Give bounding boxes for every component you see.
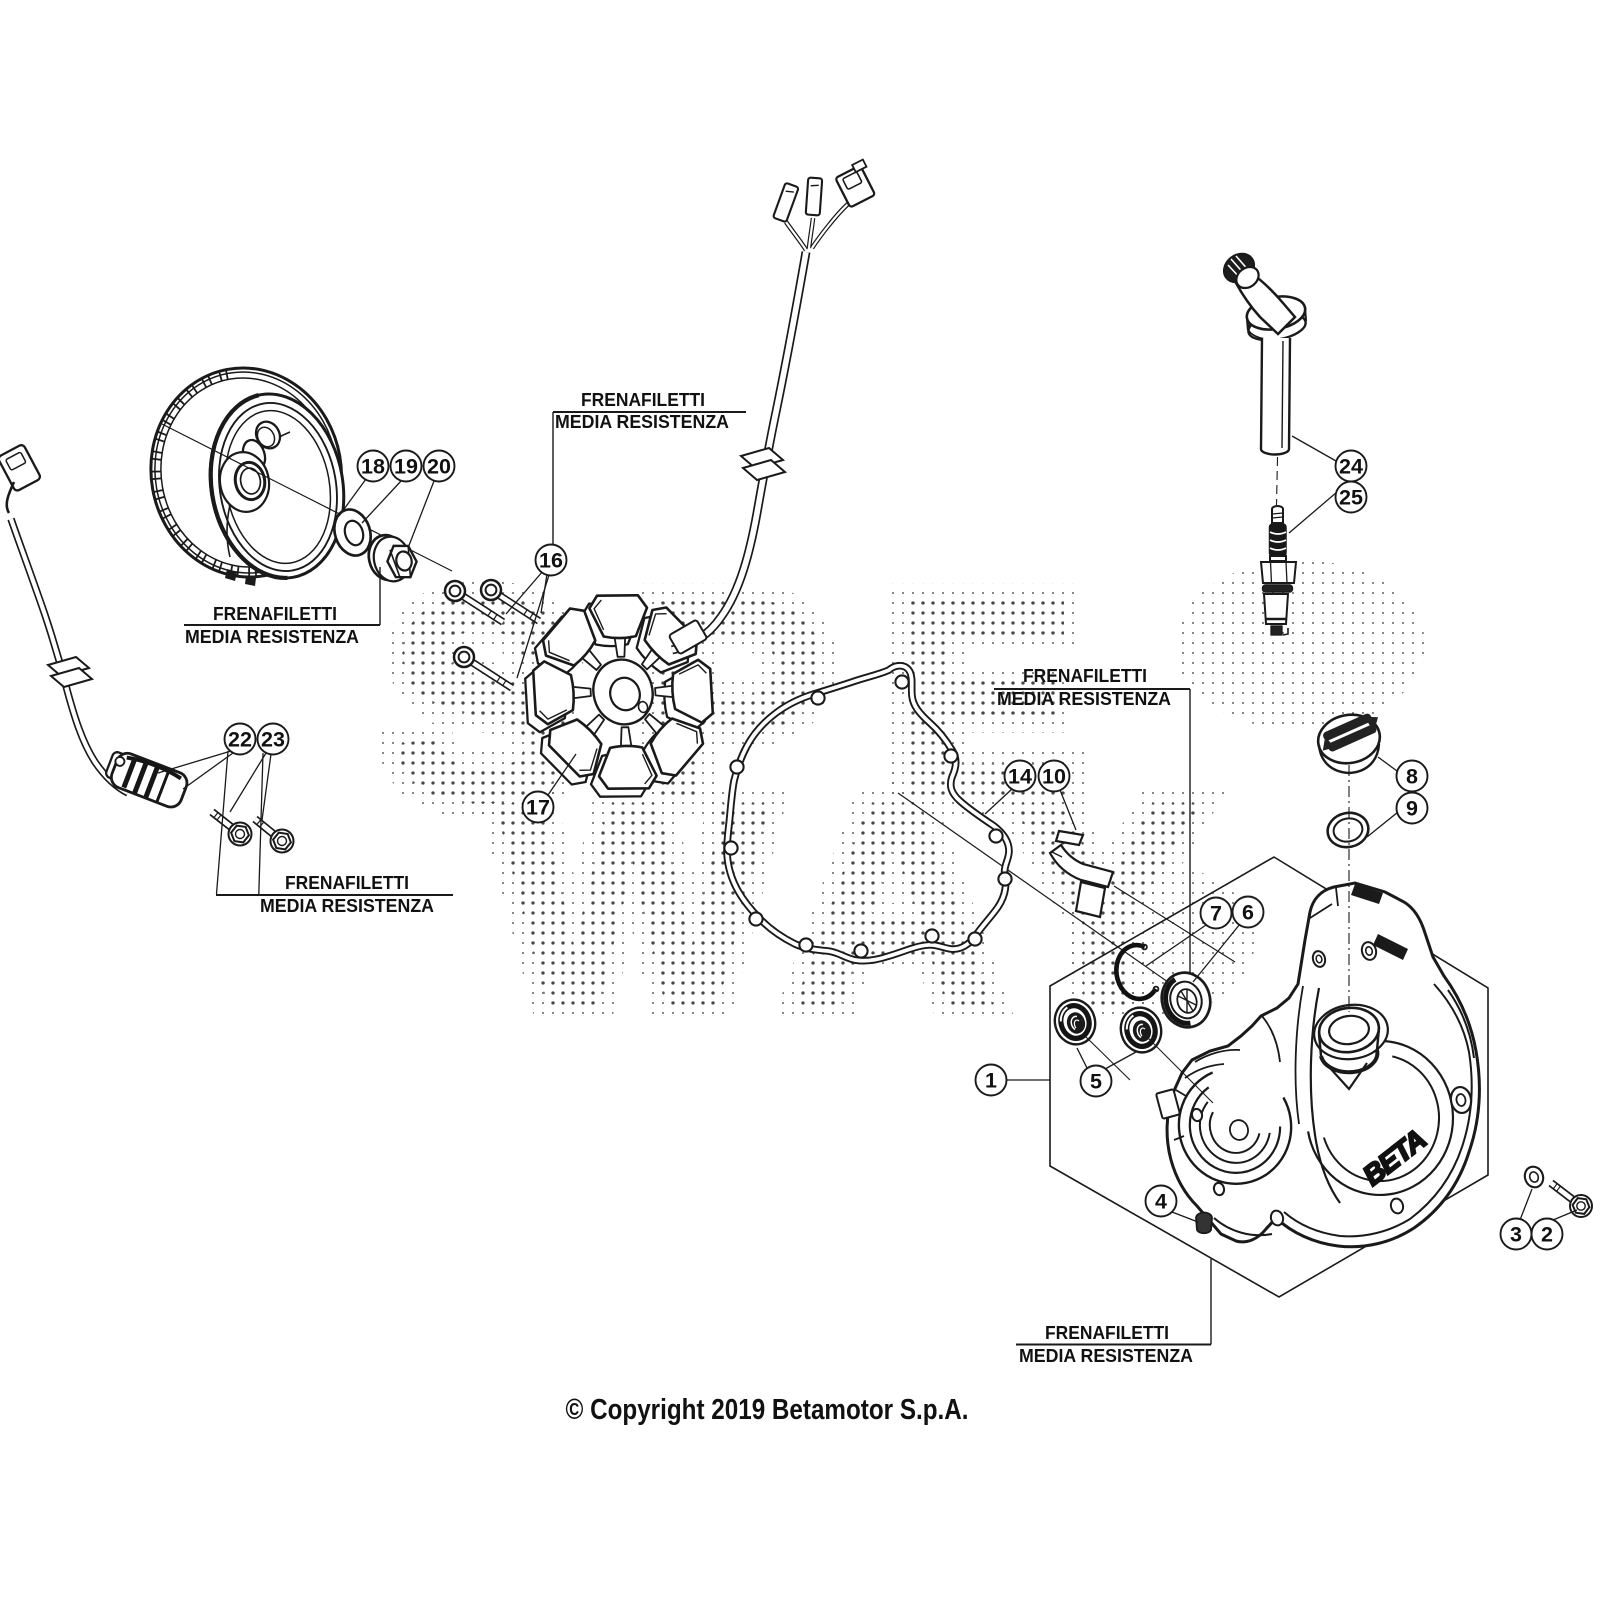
svg-text:17: 17 [526, 796, 550, 820]
svg-text:9: 9 [1406, 797, 1418, 821]
svg-text:MEDIA RESISTENZA: MEDIA RESISTENZA [1019, 1345, 1193, 1366]
svg-text:5: 5 [1090, 1070, 1102, 1094]
svg-text:2: 2 [1541, 1223, 1553, 1247]
svg-text:22: 22 [228, 728, 252, 752]
svg-text:© Copyright 2019 Betamotor S.p: © Copyright 2019 Betamotor S.p.A. [566, 1394, 969, 1426]
svg-text:8: 8 [1406, 765, 1418, 789]
svg-text:MEDIA RESISTENZA: MEDIA RESISTENZA [555, 411, 729, 432]
svg-text:6: 6 [1242, 901, 1254, 925]
svg-text:MEDIA RESISTENZA: MEDIA RESISTENZA [260, 895, 434, 916]
svg-text:1: 1 [985, 1069, 997, 1093]
svg-text:FRENAFILETTI: FRENAFILETTI [285, 872, 409, 893]
svg-text:7: 7 [1210, 902, 1222, 926]
svg-text:18: 18 [361, 455, 385, 479]
svg-text:16: 16 [539, 549, 563, 573]
svg-text:4: 4 [1155, 1190, 1167, 1214]
svg-text:23: 23 [261, 728, 285, 752]
svg-text:14: 14 [1008, 765, 1032, 789]
svg-text:FRENAFILETTI: FRENAFILETTI [1045, 1322, 1169, 1343]
svg-text:10: 10 [1042, 765, 1066, 789]
svg-text:3: 3 [1510, 1223, 1522, 1247]
svg-text:FRENAFILETTI: FRENAFILETTI [213, 603, 337, 624]
svg-text:24: 24 [1339, 455, 1363, 479]
svg-text:FRENAFILETTI: FRENAFILETTI [1023, 665, 1147, 686]
svg-text:MEDIA RESISTENZA: MEDIA RESISTENZA [185, 626, 359, 647]
svg-text:25: 25 [1339, 486, 1363, 510]
svg-text:20: 20 [427, 455, 451, 479]
svg-text:19: 19 [394, 455, 418, 479]
svg-text:MEDIA RESISTENZA: MEDIA RESISTENZA [997, 688, 1171, 709]
svg-text:FRENAFILETTI: FRENAFILETTI [581, 389, 705, 410]
